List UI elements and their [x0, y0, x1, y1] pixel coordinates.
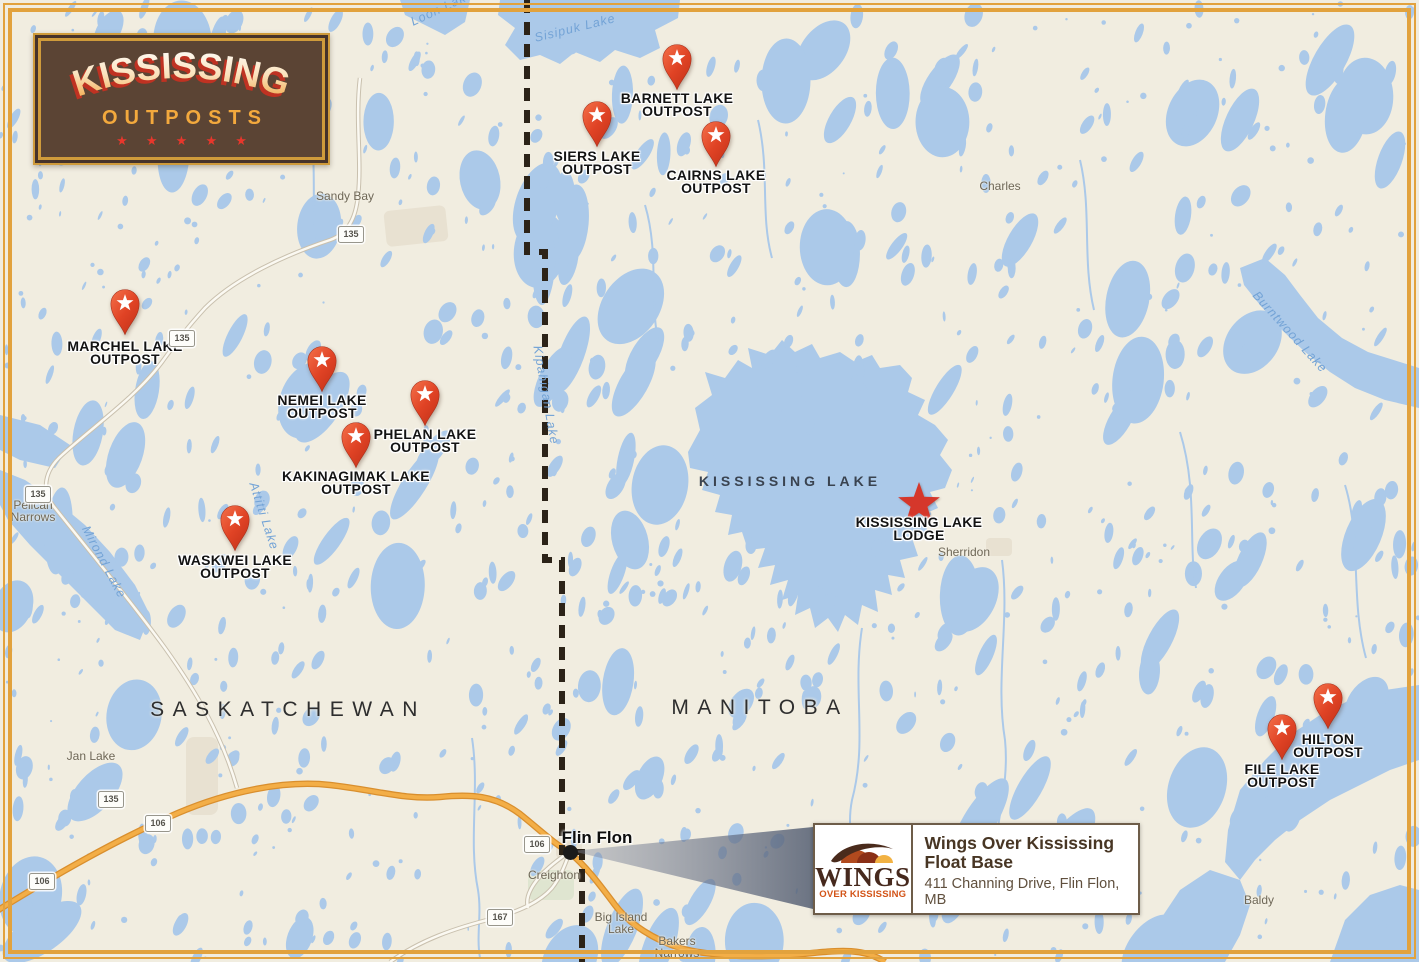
brand-stars: ★ ★ ★ ★ ★	[109, 134, 254, 149]
map-poster: BARNETT LAKEOUTPOSTSIERS LAKEOUTPOSTCAIR…	[0, 0, 1419, 962]
wings-logo: WINGS OVER KISSISSING	[815, 825, 913, 913]
wings-logo-subtitle: OVER KISSISSING	[819, 889, 906, 900]
region-label-manitoba: MANITOBA	[671, 696, 848, 720]
wings-logo-title: WINGS	[815, 865, 911, 889]
lodge-label-line2: LODGE	[856, 529, 983, 542]
city-dot-flin-flon	[563, 845, 578, 860]
region-label-saskatchewan: SASKATCHEWAN	[150, 698, 426, 722]
float-base-info-box: WINGS OVER KISSISSING Wings Over Kississ…	[813, 823, 1140, 915]
kississing-lake-label: KISSISSING LAKE	[699, 473, 881, 489]
float-base-text: Wings Over Kississing Float Base 411 Cha…	[913, 825, 1138, 913]
brand-subtitle: OUTPOSTS	[95, 107, 268, 130]
brand-logo-inner: KISSISSING KISSISSING OUTPOSTS ★ ★ ★ ★ ★	[38, 38, 325, 160]
float-base-title-line2: Float Base	[925, 852, 1126, 873]
brand-logo-box: KISSISSING KISSISSING OUTPOSTS ★ ★ ★ ★ ★	[33, 33, 330, 165]
float-base-address: 411 Channing Drive, Flin Flon, MB	[925, 876, 1126, 908]
wings-bird-icon	[827, 839, 899, 865]
float-base-title-line1: Wings Over Kississing	[925, 833, 1126, 854]
lodge-label: KISSISSING LAKE LODGE	[856, 516, 983, 542]
